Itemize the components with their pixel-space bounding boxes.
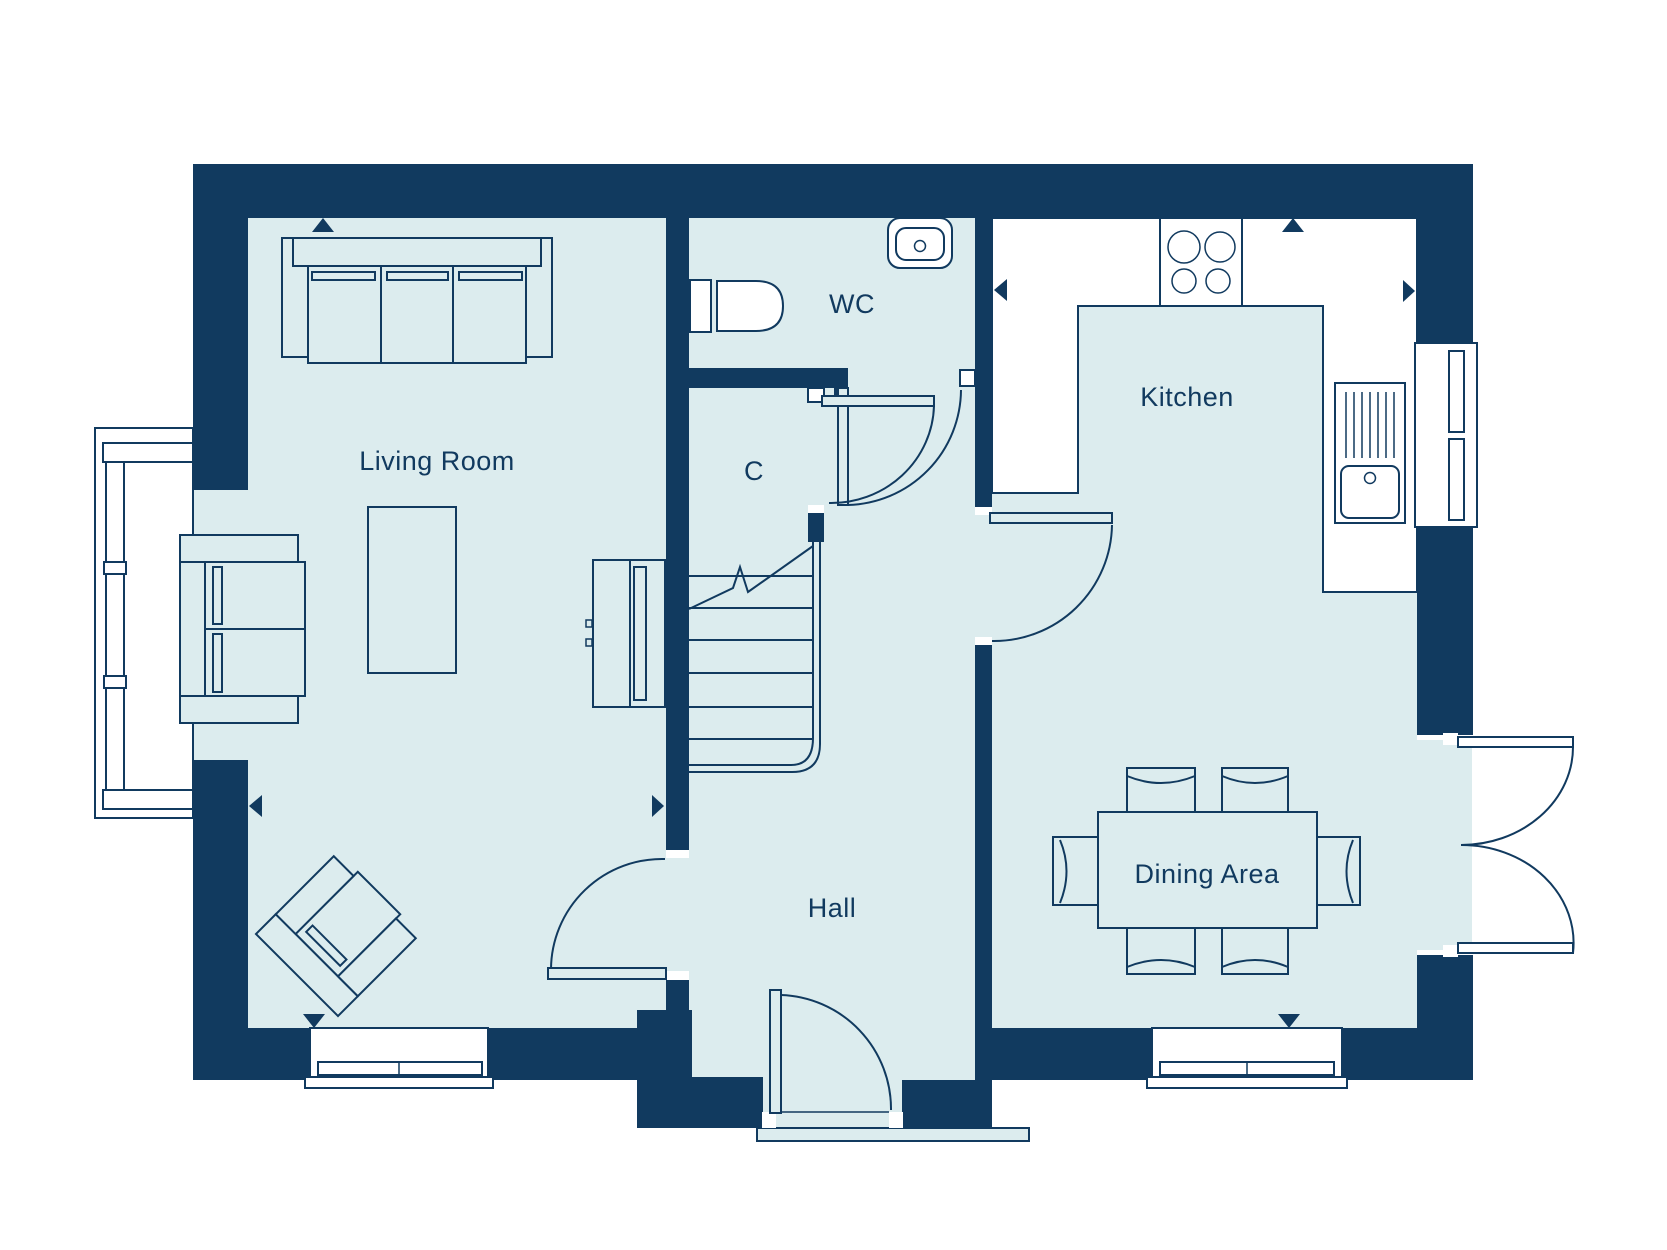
- kitchen-window: [1415, 343, 1477, 527]
- tv-unit: [586, 560, 665, 707]
- dining-chair: [1317, 837, 1360, 905]
- loveseat: [180, 535, 305, 723]
- dining-chair: [1222, 768, 1288, 814]
- coffee-table: [368, 507, 456, 673]
- room-label-closet: C: [744, 456, 764, 486]
- dining-chair: [1127, 928, 1195, 974]
- room-label-wc: WC: [829, 289, 875, 319]
- kitchen-sink-unit: [1335, 383, 1405, 523]
- toilet: [690, 280, 783, 332]
- room-label-living-room: Living Room: [359, 446, 515, 476]
- bay-window: [95, 428, 193, 818]
- hob: [1160, 218, 1242, 306]
- sofa: [282, 238, 552, 363]
- dining-chair: [1127, 768, 1195, 814]
- dining-chair: [1222, 928, 1288, 974]
- living-room-window: [305, 1028, 493, 1088]
- wc-sink: [888, 218, 952, 268]
- floorplan: Living Room WC C Hall Kitchen Dining Are…: [0, 0, 1667, 1250]
- dining-window: [1147, 1028, 1347, 1088]
- room-label-dining-area: Dining Area: [1134, 859, 1280, 889]
- room-label-hall: Hall: [808, 893, 857, 923]
- entrance-step: [757, 1128, 1029, 1141]
- dining-chair: [1053, 837, 1098, 905]
- room-label-kitchen: Kitchen: [1140, 382, 1234, 412]
